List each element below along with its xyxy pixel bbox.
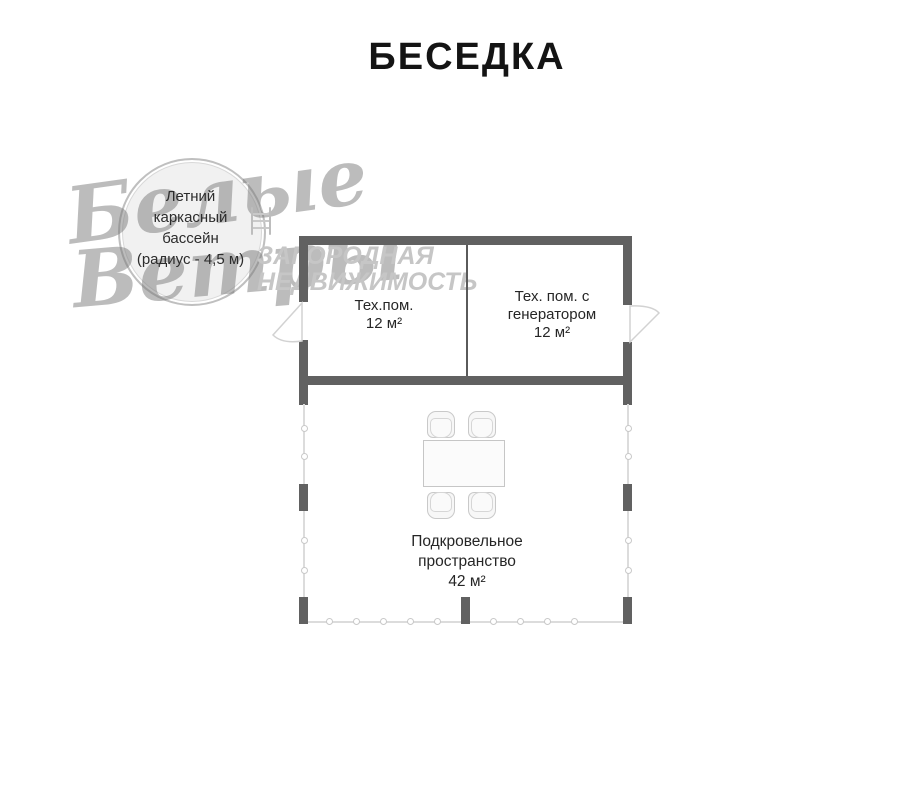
baluster [571, 618, 578, 625]
chair-seat [471, 418, 493, 438]
room-label-line: генератором [492, 306, 612, 324]
railing-post [623, 597, 632, 624]
door-right-icon [630, 306, 659, 342]
wall-right-upper [623, 236, 632, 305]
baluster [625, 537, 632, 544]
chair [468, 492, 496, 519]
baluster [380, 618, 387, 625]
railing-post [299, 484, 308, 511]
baluster [301, 567, 308, 574]
baluster [625, 425, 632, 432]
door-swings [0, 0, 900, 800]
room-label-tech: Тех.пом. 12 м² [324, 297, 444, 333]
baluster [625, 453, 632, 460]
baluster [625, 567, 632, 574]
room-label-line: 12 м² [492, 324, 612, 342]
room-label-line: Подкровельное [387, 532, 547, 552]
chair [427, 411, 455, 438]
table [423, 440, 505, 487]
wall-left-lower [299, 340, 308, 385]
baluster [326, 618, 333, 625]
railing-post [623, 484, 632, 511]
railing-post [299, 597, 308, 624]
wall-tech-bottom [299, 376, 632, 385]
railing-right [627, 404, 629, 624]
chair [427, 492, 455, 519]
baluster [490, 618, 497, 625]
room-label-tech-generator: Тех. пом. с генератором 12 м² [492, 288, 612, 342]
wall-room-divider [466, 245, 468, 376]
baluster [301, 537, 308, 544]
room-label-under-roof: Подкровельное пространство 42 м² [387, 532, 547, 592]
wall-left-stub [299, 385, 308, 405]
page-title: БЕСЕДКА [368, 36, 565, 79]
baluster [301, 425, 308, 432]
watermark-caption-line: НЕДВИЖИМОСТЬ [257, 269, 477, 295]
pool-label-line: Летний [113, 186, 268, 207]
pool-label-line: бассейн [113, 228, 268, 249]
wall-left-upper [299, 236, 308, 302]
pool-label-line: (радиус - 4,5 м) [113, 249, 268, 270]
chair-seat [430, 418, 452, 438]
ladder-rail [269, 207, 271, 235]
pool-label: Летний каркасный бассейн (радиус - 4,5 м… [113, 186, 268, 270]
watermark-caption: ЗАГОРОДНАЯ НЕДВИЖИМОСТЬ [257, 243, 477, 295]
wall-top [299, 236, 632, 245]
baluster [407, 618, 414, 625]
wall-right-lower [623, 342, 632, 385]
chair-seat [430, 492, 452, 512]
baluster [544, 618, 551, 625]
room-label-line: пространство [387, 552, 547, 572]
room-label-line: Тех.пом. [324, 297, 444, 315]
room-label-line: 42 м² [387, 572, 547, 592]
chair [468, 411, 496, 438]
watermark-caption-line: ЗАГОРОДНАЯ [257, 243, 477, 269]
railing-post [461, 597, 470, 624]
door-left-icon [273, 303, 302, 342]
wall-right-stub [623, 385, 632, 405]
baluster [517, 618, 524, 625]
railing-left [303, 404, 305, 624]
floor-plan-page: БЕСЕДКА Белые Ветры ЗАГОРОДНАЯ НЕДВИЖИМО… [0, 0, 900, 800]
room-label-line: Тех. пом. с [492, 288, 612, 306]
baluster [434, 618, 441, 625]
chair-seat [471, 492, 493, 512]
room-label-line: 12 м² [324, 315, 444, 333]
baluster [353, 618, 360, 625]
pool-label-line: каркасный [113, 207, 268, 228]
baluster [301, 453, 308, 460]
